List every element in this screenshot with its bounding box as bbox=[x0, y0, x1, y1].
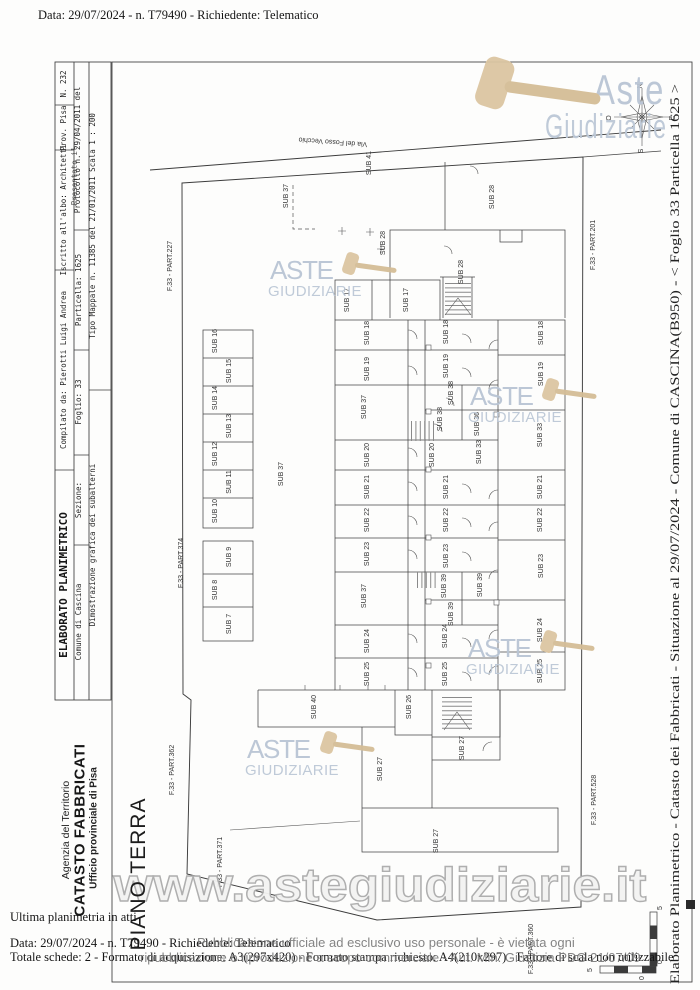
sub-unit-label: SUB 23 bbox=[364, 542, 371, 566]
presented-stamp: Presentato il bbox=[70, 147, 79, 206]
registered-architect: Iscritto all'albo: Architetti bbox=[59, 145, 68, 276]
svg-text:ASTE: ASTE bbox=[468, 633, 534, 663]
sub-unit-label: SUB 22 bbox=[443, 508, 450, 532]
sub-unit-label: SUB 14 bbox=[212, 386, 219, 410]
sub-unit-label: SUB 20 bbox=[429, 443, 436, 467]
sub-unit-label: SUB 37 bbox=[361, 395, 368, 419]
sub-unit-label: SUB 9 bbox=[226, 547, 233, 567]
title-block-title: ELABORATO PLANIMETRICO bbox=[57, 512, 70, 658]
sub-unit-label: SUB 27 bbox=[459, 736, 466, 760]
sub-unit-label: SUB 23 bbox=[538, 554, 545, 578]
sub-unit-label: SUB 15 bbox=[226, 359, 233, 383]
sub-unit-label: SUB 33 bbox=[537, 423, 544, 447]
particella: Particella: 1625 bbox=[74, 254, 83, 326]
logo-giudiziarie: Giudiziarie bbox=[545, 108, 667, 146]
svg-text:ASTE: ASTE bbox=[270, 255, 336, 285]
sub-unit-label: SUB 24 bbox=[364, 629, 371, 653]
sub-unit-label: SUB 13 bbox=[226, 414, 233, 438]
sub-unit-label: SUB 37 bbox=[361, 584, 368, 608]
svg-text:GIUDIZIARIE: GIUDIZIARIE bbox=[245, 762, 340, 779]
plan-label: 0 bbox=[639, 976, 646, 980]
svg-text:GIUDIZIARIE: GIUDIZIARIE bbox=[468, 409, 563, 426]
sub-unit-label: SUB 37 bbox=[278, 462, 285, 486]
agency-name: Agenzia del Territorio bbox=[60, 781, 72, 879]
sub-unit-label: SUB 10 bbox=[212, 499, 219, 523]
table-description: Dimostrazione grafica dei subalterni bbox=[88, 464, 97, 627]
svg-text:GIUDIZIARIE: GIUDIZIARIE bbox=[466, 661, 561, 678]
register-number: N. 232 bbox=[59, 70, 68, 97]
sub-unit-label: SUB 20 bbox=[364, 443, 371, 467]
parcel-boundary bbox=[150, 130, 661, 920]
sub-unit-label: SUB 38 bbox=[437, 407, 444, 431]
parcel-label: F.33 - PART.201 bbox=[590, 220, 597, 270]
plan-label: 5 bbox=[657, 906, 664, 910]
tipo-mappale: Tipo Mappale n. 11385 del 21/01/2011 Sca… bbox=[88, 113, 97, 339]
svg-text:ASTE: ASTE bbox=[470, 381, 536, 411]
sub-unit-label: SUB 28 bbox=[458, 260, 465, 284]
watermark-small-4: ASTE GIUDIZIARIE bbox=[466, 629, 595, 678]
sub-unit-label: SUB 40 bbox=[311, 695, 318, 719]
sheet-border bbox=[112, 62, 695, 982]
sub-unit-label: SUB 19 bbox=[364, 357, 371, 381]
sub-unit-label: SUB 18 bbox=[538, 321, 545, 345]
sub-unit-label: SUB 37 bbox=[283, 184, 290, 208]
watermark-small-2: ASTE GIUDIZIARIE bbox=[468, 377, 597, 426]
sub-unit-label: SUB 27 bbox=[377, 757, 384, 781]
watermark-small-3: ASTE GIUDIZIARIE bbox=[245, 730, 375, 779]
sub-unit-label: SUB 25 bbox=[442, 662, 449, 686]
sub-unit-label: SUB 11 bbox=[226, 470, 233, 494]
catasto-fabbricati-title: CATASTO FABBRICATI bbox=[72, 744, 89, 917]
sub-unit-label: SUB 8 bbox=[212, 580, 219, 600]
registration-mark bbox=[686, 900, 695, 909]
parcel-label: F.33 - PART.374 bbox=[178, 538, 185, 588]
plan-label: S bbox=[638, 148, 645, 153]
sub-unit-label: SUB 28 bbox=[489, 185, 496, 209]
plan-label: 5 bbox=[587, 968, 594, 972]
sub-unit-label: SUB 7 bbox=[226, 614, 233, 634]
parcel-label: F.33 - PART.528 bbox=[591, 775, 598, 825]
sub-unit-label: SUB 22 bbox=[364, 508, 371, 532]
right-margin-caption: Elaborato Planimetrico - Catasto dei Fab… bbox=[668, 84, 682, 984]
sub-unit-label: SUB 21 bbox=[443, 475, 450, 499]
sub-unit-label: SUB 19 bbox=[538, 362, 545, 386]
sub-unit-label: SUB 23 bbox=[443, 544, 450, 568]
compiled-by: Compilato da: Pierotti Luigi Andrea bbox=[59, 291, 68, 449]
sub-unit-label: SUB 24 bbox=[442, 624, 449, 648]
watermark-small-1: ASTE GIUDIZIARIE bbox=[268, 251, 397, 300]
sub-unit-label: SUB 38 bbox=[448, 381, 455, 405]
sub-unit-label: SUB 17 bbox=[403, 288, 410, 312]
sub-unit-label: SUB 26 bbox=[406, 695, 413, 719]
sub-unit-label: SUB 25 bbox=[364, 662, 371, 686]
plan-labels: Via del Fosso VecchioSUB 41SUB 37SUB 28S… bbox=[167, 83, 676, 979]
province: Prov. Pisa bbox=[59, 105, 68, 150]
title-block-table: ELABORATO PLANIMETRICO Compilato da: Pie… bbox=[55, 62, 111, 700]
plan-sheet: ELABORATO PLANIMETRICO Compilato da: Pie… bbox=[0, 0, 700, 990]
sub-unit-label: SUB 39 bbox=[441, 574, 448, 598]
sub-unit-label: SUB 19 bbox=[443, 354, 450, 378]
sub-unit-label: SUB 22 bbox=[537, 508, 544, 532]
sub-unit-label: SUB 33 bbox=[476, 440, 483, 464]
sub-unit-label: SUB 39 bbox=[477, 573, 484, 597]
parcel-label: F.33 - PART.227 bbox=[167, 241, 174, 291]
footer-last-plan-note: Ultima planimetria in atti bbox=[10, 910, 137, 925]
parcel-label: F.33 - PART.362 bbox=[169, 745, 176, 795]
sub-unit-label: SUB 18 bbox=[364, 321, 371, 345]
sub-unit-label: SUB 27 bbox=[433, 829, 440, 853]
watermark-url: www.astegiudiziarie.it bbox=[112, 858, 646, 911]
svg-text:ASTE: ASTE bbox=[247, 734, 313, 764]
sub-unit-label: SUB 39 bbox=[448, 602, 455, 626]
foglio: Foglio: 33 bbox=[74, 379, 83, 424]
sub-unit-label: SUB 12 bbox=[212, 442, 219, 466]
comune: Comune di Cascina bbox=[74, 584, 83, 661]
sezione: Sezione: bbox=[74, 482, 83, 518]
plan-label: Via del Fosso Vecchio bbox=[298, 136, 367, 148]
disclaimer-line-1: Pubblicazione ufficiale ad esclusivo uso… bbox=[197, 935, 575, 950]
sub-unit-label: SUB 21 bbox=[537, 475, 544, 499]
scanned-cadastral-document: { "header": { "doc_info": "Data: 29/07/2… bbox=[0, 0, 700, 990]
sub-unit-label: SUB 18 bbox=[443, 320, 450, 344]
svg-text:GIUDIZIARIE: GIUDIZIARIE bbox=[268, 283, 363, 300]
floor-title: PIANO TERRA bbox=[127, 798, 151, 951]
sub-unit-label: SUB 41 bbox=[366, 151, 373, 175]
sub-unit-label: SUB 21 bbox=[364, 475, 371, 499]
provincial-office: Ufficio provinciale di Pisa bbox=[89, 767, 100, 889]
sub-unit-label: SUB 28 bbox=[380, 231, 387, 255]
watermarks: Aste Giudiziarie ASTE GIUDIZIARIE ASTE G… bbox=[112, 54, 667, 911]
sub-unit-label: SUB 16 bbox=[212, 329, 219, 353]
disclaimer-line-2: ripubblicazione o riproduzione a scopo c… bbox=[140, 950, 641, 965]
logo-aste: Aste bbox=[593, 66, 665, 113]
